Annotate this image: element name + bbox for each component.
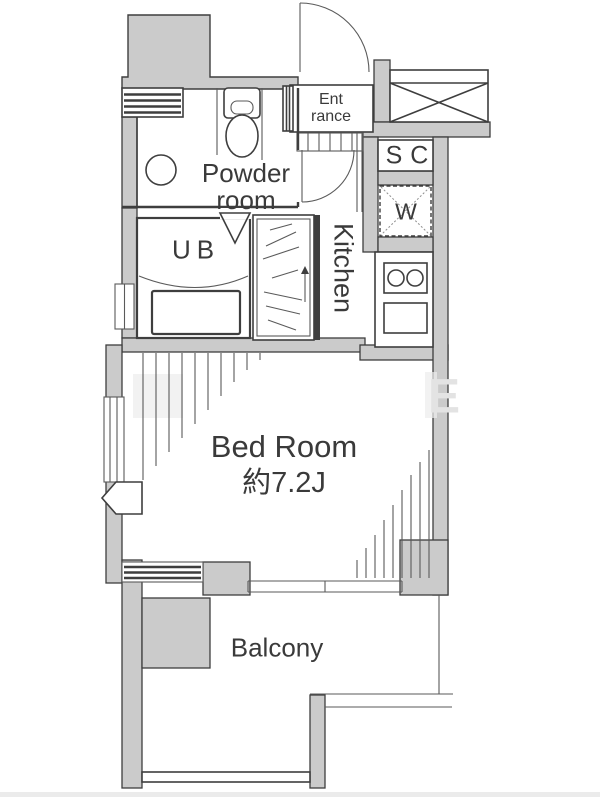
entrance-door-pocket [283,86,293,131]
bedroom-bottom-louver [122,562,203,582]
louver-hatch [122,88,183,117]
floor-plan: Ent rance SC W Kitchen Powder room UB E … [0,0,600,800]
unit-bath-label: UB [166,235,220,266]
floor-plan-drawing [0,0,600,800]
washbasin-icon [146,155,176,185]
stove-icon [384,263,427,293]
shaft-x-box [390,70,488,122]
shoe-closet-label: SC [378,142,437,171]
sink-icon [384,303,427,333]
watermark-letter: E [428,370,460,425]
ub-window [115,284,134,329]
entrance-step [297,133,363,151]
hall-door-arc [302,150,354,202]
powder-room-label: Powder room [202,160,290,214]
closet-sliding-door [314,215,320,340]
watermark-blocks [133,372,437,418]
entrance-label: Ent rance [311,91,351,125]
kitchen-counter [375,252,433,347]
bathtub-icon [152,291,240,334]
toilet-icon [217,88,262,160]
sliding-window [248,581,402,592]
washer-label: W [395,199,417,226]
kitchen-label: Kitchen [328,223,359,313]
balcony-label: Balcony [231,633,324,664]
bedroom-label: Bed Room 約7.2J [211,428,357,502]
bedroom-left-window [104,397,124,482]
closet [253,215,320,340]
front-door-arc [300,3,369,72]
balcony-bottom-rail [142,772,310,782]
bottom-border-band [0,792,600,797]
